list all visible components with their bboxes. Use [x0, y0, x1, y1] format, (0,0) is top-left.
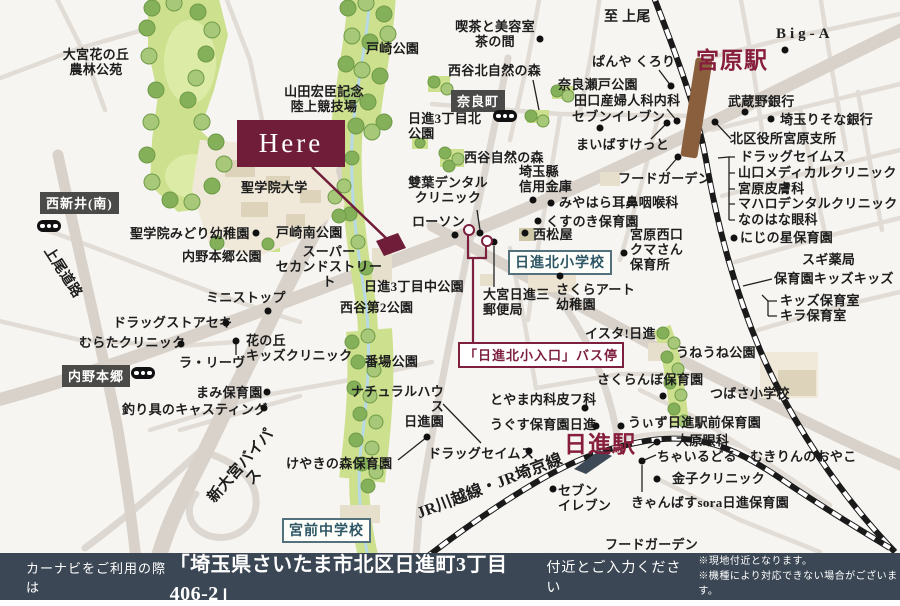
bus-stop-icon	[480, 235, 492, 251]
ward-office-miyahara: 北区役所宮原支所	[730, 132, 836, 147]
yamaguchi-medical: 山口メディカルクリニック	[738, 166, 897, 181]
panya-kurori: ぱんや くろり	[592, 55, 675, 70]
maibasket: まいばすけっと	[576, 138, 669, 153]
la-rive: ラ・リーヴ	[179, 356, 246, 371]
poi-dot	[654, 439, 661, 446]
footer-address: 「埼玉県さいたま市北区日進町3丁目406-2」	[170, 548, 545, 606]
badge-miyamae-junior-high: 宮前中学校	[282, 518, 371, 543]
poi-dot	[618, 423, 625, 430]
poi-dot	[522, 230, 529, 237]
poi-dot	[664, 120, 671, 127]
musashino-bank: 武蔵野銀行	[728, 95, 795, 110]
banba-park: 番場公園	[365, 355, 418, 370]
sugi-pharmacy: スギ薬局	[802, 253, 855, 268]
poi-dot	[452, 232, 459, 239]
sakuranbo-hoikuen: さくらんぼ保育園	[597, 373, 703, 388]
childroom-kirin: ちゃいるどるーむきりんのおやこ	[657, 450, 857, 465]
miyahara-station: 宮原駅	[696, 48, 768, 74]
oomiya-nisshin3-post: 大宮日進三 郵便局	[483, 288, 550, 318]
lawson: ローソン	[412, 215, 465, 230]
poi-dot	[537, 36, 544, 43]
saitamaken-shinkin: 埼玉縣 信用金庫	[519, 165, 572, 195]
poi-dot	[557, 273, 564, 280]
drug-seimusu-miyahara: ドラッグセイムス	[740, 150, 846, 165]
poi-dot	[731, 235, 738, 242]
poi-dot	[535, 218, 542, 225]
poi-dot	[639, 458, 646, 465]
traffic-signal-icon	[493, 110, 517, 122]
poi-dot	[530, 197, 537, 204]
miyahara-nishiguchi-kumasan: 宮原西口 クマさん 保育所	[630, 228, 683, 272]
uneune-park: うねうね公園	[676, 346, 756, 361]
poi-dot	[550, 486, 557, 493]
with-nisshin-ekimae: うぃず日進駅前保育園	[628, 416, 761, 431]
nishigaya-forest: 西谷自然の森	[464, 151, 544, 166]
badge-uchino-hongo: 内野本郷	[62, 365, 130, 387]
risona-bank: 埼玉りそな銀行	[780, 113, 873, 128]
taguchi-clinic: 田口産婦人科内科	[574, 94, 680, 109]
ugusu-hoikuen-nisshin: うぐす保育園日進	[490, 418, 596, 433]
seven-eleven-nisshin: セブン イレブン	[558, 484, 611, 514]
poi-dot	[261, 405, 268, 412]
poi-dot	[264, 389, 271, 396]
food-garden-miyahara: フードガーデン	[618, 172, 711, 187]
footer-note-2: ※機種により対応できない場合がございます。	[698, 569, 900, 599]
miyahara-jibika: みやはら耳鼻咽喉科	[559, 196, 679, 211]
canvas-sora-nisshin: きゃんばすsora日進保育園	[631, 496, 789, 511]
murata-clinic: むらたクリニック	[79, 336, 185, 351]
futaba-dental: 雙葉デンタル クリニック	[406, 176, 490, 206]
poi-dot	[597, 125, 604, 132]
poi-dot	[548, 200, 555, 207]
poi-dot	[621, 250, 628, 257]
ageo-doro: 上尾道路	[34, 235, 91, 311]
miyahara-hifuka: 宮原皮膚科	[738, 182, 805, 197]
here-marker: Here	[237, 120, 345, 167]
food-garden-nisshin: フードガーデン	[605, 538, 698, 553]
bus-stop-icon	[462, 224, 474, 240]
poi-dot	[660, 393, 667, 400]
nisshin3-kita-park: 日進3丁目北 公園	[408, 112, 481, 142]
toyama-naika-hifuka: とやま内科皮フ科	[490, 393, 596, 408]
poi-dot	[582, 405, 589, 412]
to-ageo: 至 上尾	[604, 10, 651, 26]
poi-dot	[742, 109, 749, 116]
kira-hoikushitsu: キラ保育室	[780, 309, 847, 324]
oohara-ganka: 大原眼科	[676, 434, 729, 449]
poi-dot	[674, 118, 681, 125]
seven-eleven-miyahara: セブンイレブン	[572, 110, 665, 125]
map-canvas: 大宮花の丘 農林公苑戸崎公園山田宏臣記念 陸上競技場喫茶と美容室 茶の間至 上尾…	[0, 0, 900, 553]
mahalo-dental: マハロデンタルクリニック	[738, 197, 898, 212]
nisshin3-naka-park: 日進3丁目中公園	[364, 280, 464, 295]
badge-naramachi: 奈良町	[451, 90, 505, 112]
poi-dot	[233, 338, 240, 345]
poi-dot	[223, 320, 230, 327]
footer-prefix: カーナビをご利用の際は	[26, 558, 168, 596]
poi-dot	[265, 308, 272, 315]
drug-seimusu-nisshin: ドラッグセイムス	[428, 447, 534, 462]
poi-dot	[593, 423, 600, 430]
nishigaya-kita-forest: 西谷北自然の森	[448, 64, 541, 79]
hananooka-kids-clinic: 花の丘 キッズクリニック	[246, 334, 352, 364]
drugstore-seki: ドラッグストアセキ	[113, 316, 232, 331]
mami-hoikuen: まみ保育園	[196, 386, 263, 401]
traffic-signal-icon	[37, 220, 61, 232]
natural-house-nisshinen: ナチュラルハウス 日進園	[338, 385, 444, 429]
footer-note-1: ※現地付近となります。	[698, 554, 900, 569]
tozaki-park: 戸崎公園	[366, 42, 419, 57]
poi-dot	[424, 434, 431, 441]
tsurigu-casting: 釣り具のキャスティング	[122, 403, 268, 418]
poi-dot	[526, 448, 533, 455]
car-navi-bar: カーナビをご利用の際は 「埼玉県さいたま市北区日進町3丁目406-2」 付近とご…	[0, 553, 900, 600]
shin-oomiya-bypass: 新大宮バイパス	[201, 422, 295, 523]
kissa-chanoma: 喫茶と美容室 茶の間	[452, 20, 538, 50]
oomiya-hananooka-park: 大宮花の丘 農林公苑	[52, 48, 140, 78]
poi-dot	[782, 47, 789, 54]
uchino-hongo-park: 内野本郷公園	[182, 250, 262, 265]
yamada-stadium: 山田宏臣記念 陸上競技場	[280, 85, 368, 115]
ista-nisshin: イスタ!日進	[585, 327, 656, 342]
poi-dot	[668, 83, 675, 90]
naraseto-park: 奈良瀬戸公園	[558, 78, 638, 93]
poi-dot	[253, 230, 260, 237]
footer-suffix: 付近とご入力ください	[546, 557, 684, 597]
map-labels-layer: 大宮花の丘 農林公苑戸崎公園山田宏臣記念 陸上競技場喫茶と美容室 茶の間至 上尾…	[0, 0, 900, 553]
tsubasa-shogakko: つばさ小学校	[710, 387, 790, 402]
hoikuen-kids-kids: 保育園キッズキッズ	[774, 272, 894, 287]
poi-dot	[712, 119, 719, 126]
badge-nisshin-kita-elementary: 日進北小学校	[508, 250, 612, 275]
traffic-signal-icon	[131, 367, 155, 379]
ministop: ミニストップ	[206, 291, 286, 306]
badge-nishiarai-minami: 西新井(南)	[40, 192, 119, 214]
seigakuin-univ: 聖学院大学	[241, 181, 308, 196]
poi-dot	[654, 476, 661, 483]
nishigaya2-park: 西谷第2公園	[340, 301, 413, 316]
keyaki-no-mori-hoikuen: けやきの森保育園	[286, 457, 392, 472]
tozaki-minami-park: 戸崎南公園	[276, 226, 343, 241]
location-map: 大宮花の丘 農林公苑戸崎公園山田宏臣記念 陸上競技場喫茶と美容室 茶の間至 上尾…	[0, 0, 900, 600]
poi-dot	[178, 341, 185, 348]
poi-dot	[675, 154, 682, 161]
badge-bus-stop-nisshin-kita-iriguchi: 「日進北小入口」バス停	[458, 342, 624, 368]
kaneko-clinic: 金子クリニック	[672, 472, 765, 487]
nijinohoshi-hoikuen: にじの星保育園	[740, 231, 833, 246]
poi-dot	[768, 116, 775, 123]
nishimatsuya: 西松屋	[533, 228, 573, 243]
nanohana-ganka: なのはな眼科	[738, 213, 818, 228]
big-a: Big-A	[776, 26, 834, 43]
sakura-art-yochien: さくらアート 幼稚園	[556, 283, 635, 313]
footer-notes: ※現地付近となります。 ※機種により対応できない場合がございます。	[698, 554, 900, 599]
kids-hoikushitsu: キッズ保育室	[780, 294, 860, 309]
seigakuin-midori-yochien: 聖学院みどり幼稚園	[130, 227, 250, 242]
